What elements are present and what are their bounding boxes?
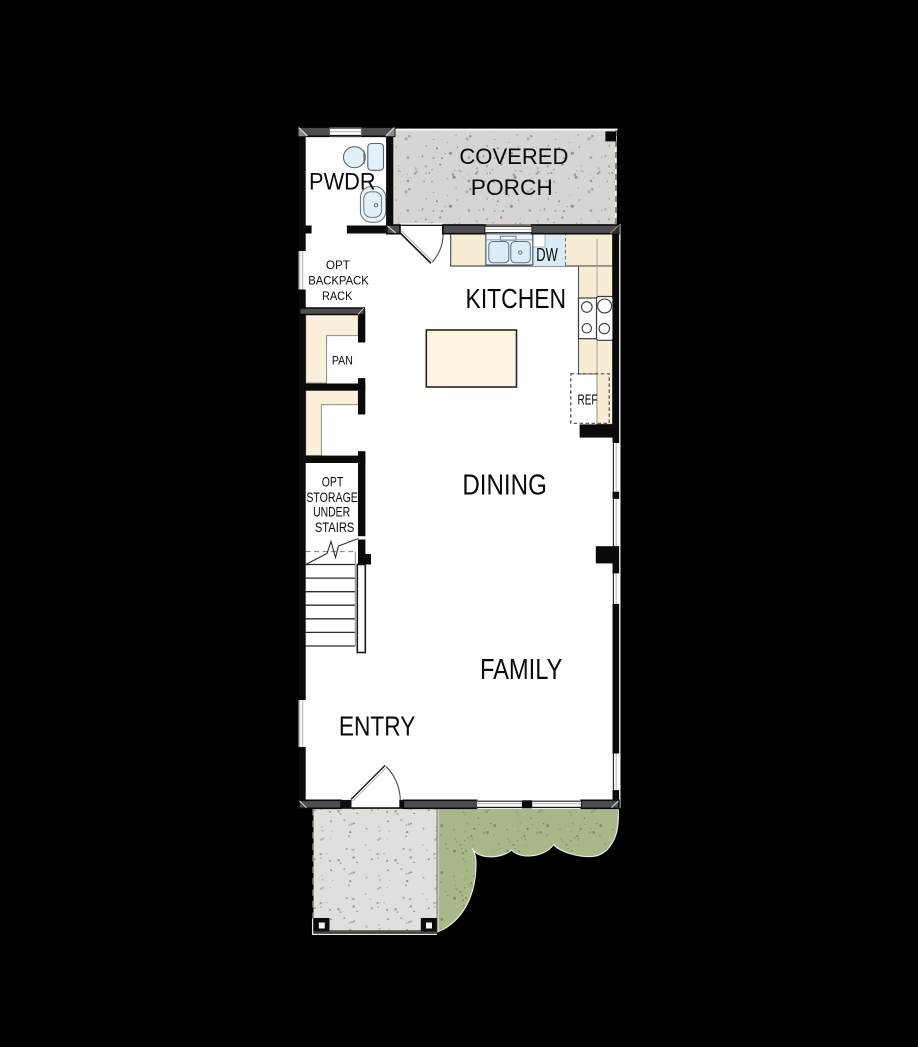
svg-text:PORCH: PORCH bbox=[471, 175, 553, 200]
svg-text:DINING: DINING bbox=[462, 470, 547, 502]
svg-text:FAMILY: FAMILY bbox=[480, 654, 563, 686]
svg-text:PWDR: PWDR bbox=[309, 168, 376, 195]
svg-text:STORAGE: STORAGE bbox=[306, 489, 358, 505]
svg-text:OPT: OPT bbox=[322, 474, 344, 490]
svg-text:KITCHEN: KITCHEN bbox=[466, 283, 567, 314]
svg-text:BACKPACK: BACKPACK bbox=[308, 273, 369, 287]
svg-text:UNDER: UNDER bbox=[313, 504, 350, 520]
svg-text:DW: DW bbox=[536, 245, 558, 265]
svg-text:REF: REF bbox=[578, 392, 598, 409]
svg-text:STAIRS: STAIRS bbox=[315, 519, 355, 535]
svg-text:COVERED: COVERED bbox=[459, 144, 568, 169]
svg-text:RACK: RACK bbox=[322, 289, 353, 303]
svg-text:ENTRY: ENTRY bbox=[339, 710, 416, 741]
svg-text:PAN: PAN bbox=[332, 354, 353, 368]
svg-text:OPT: OPT bbox=[326, 258, 351, 272]
